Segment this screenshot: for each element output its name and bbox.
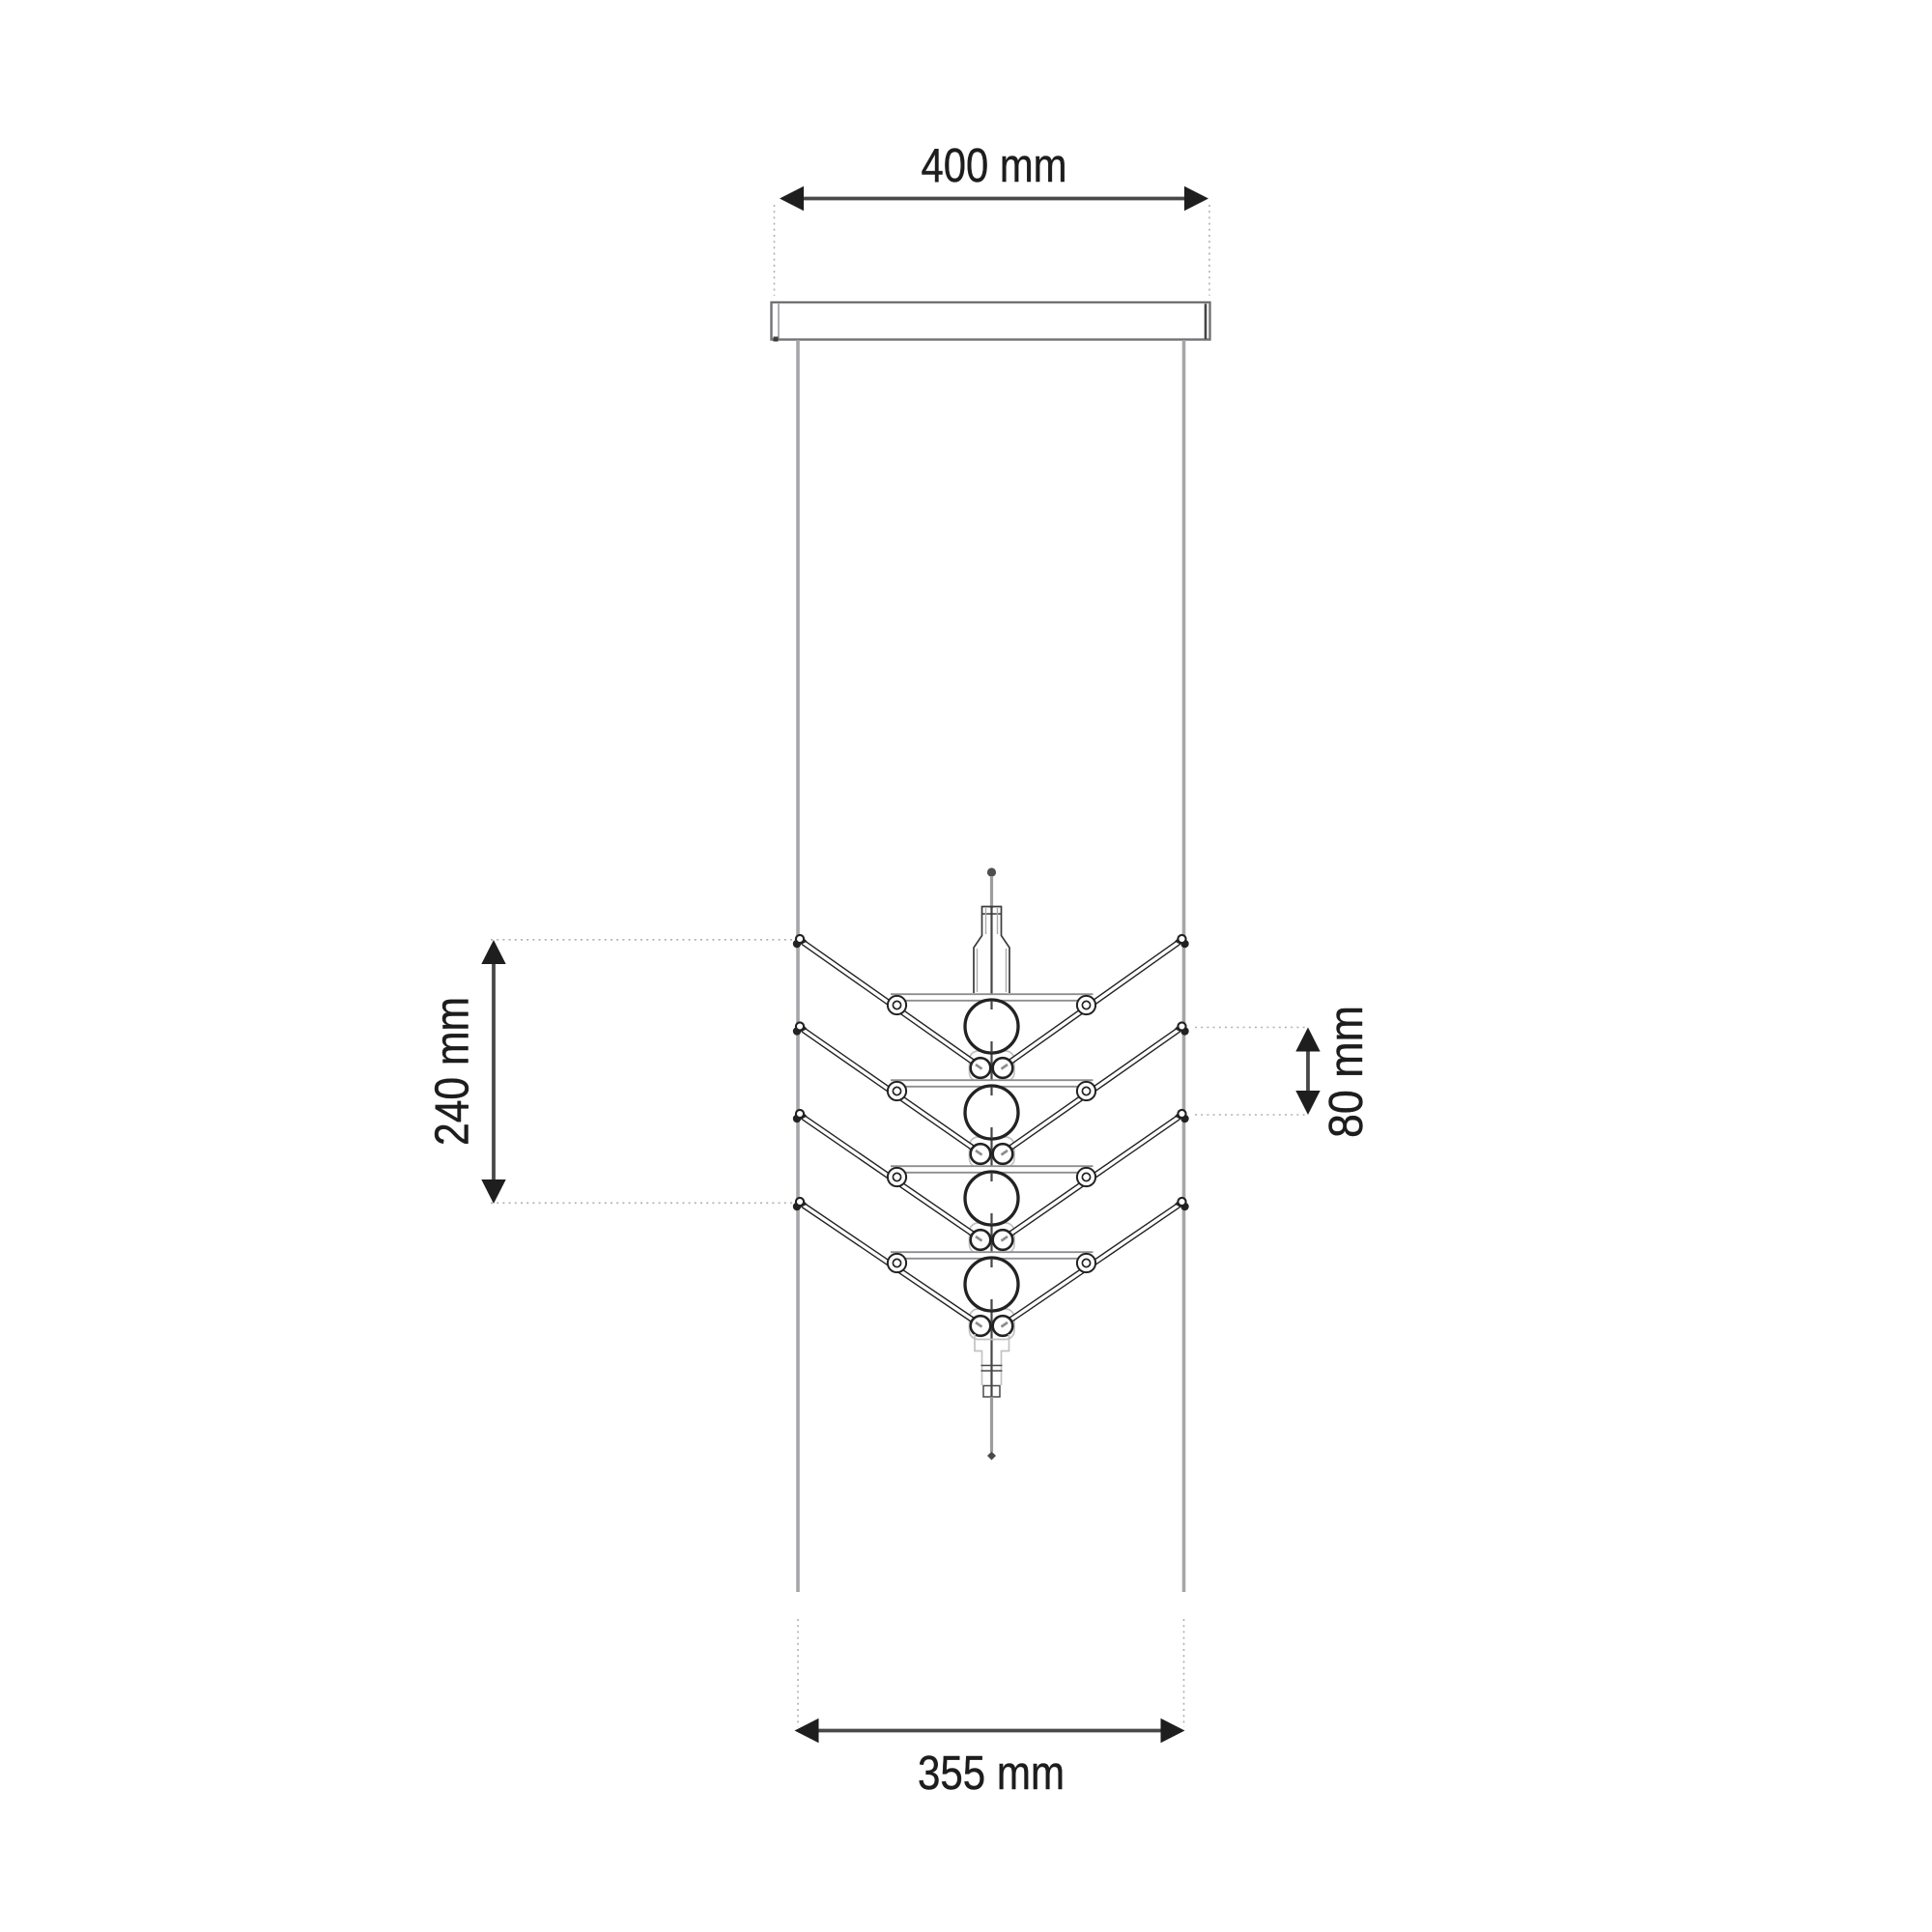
svg-text:400 mm: 400 mm [922,140,1067,192]
svg-text:355 mm: 355 mm [918,1747,1065,1800]
svg-text:240 mm: 240 mm [427,997,479,1146]
svg-text:80 mm: 80 mm [1321,1006,1373,1138]
